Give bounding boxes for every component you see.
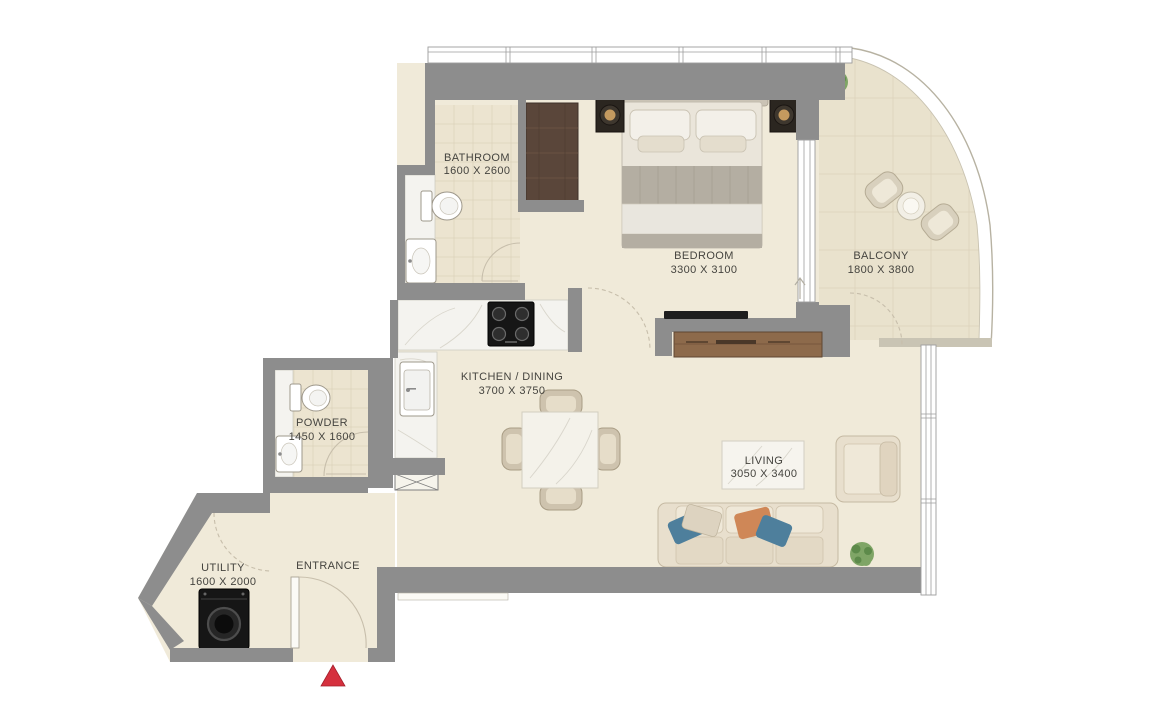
label-bedroom-dims: 3300 X 3100 — [671, 264, 738, 276]
blanket-edge — [622, 234, 762, 248]
wall-shaft-block — [393, 458, 445, 475]
entrance-marker-icon — [321, 665, 345, 686]
dining-table — [522, 412, 598, 488]
window-bedroom-balcony — [798, 140, 815, 302]
cushion — [700, 136, 746, 152]
label-powder: POWDER — [296, 417, 348, 429]
wall-bedroom-right-upper — [796, 100, 819, 140]
wall-powder-right — [368, 358, 393, 488]
label-kitchen-dims: 3700 X 3750 — [479, 385, 546, 397]
nightstand-left — [596, 98, 624, 132]
wall-tv-end — [655, 318, 672, 356]
wall-entry-bottom-left — [170, 648, 293, 662]
label-living-dims: 3050 X 3400 — [731, 468, 798, 480]
window-top — [428, 47, 852, 63]
bathroom-toilet — [421, 191, 462, 221]
wall-tv — [655, 318, 850, 332]
wall-powder-bottom — [263, 477, 368, 493]
floor-plan-page: BATHROOM 1600 X 2600 BEDROOM 3300 X 3100… — [0, 0, 1152, 728]
wall-powder-top — [263, 358, 368, 370]
entry-cabinet-niche — [398, 593, 508, 600]
wall-kitchen-stub — [568, 288, 582, 352]
powder-toilet — [290, 384, 330, 411]
wall-wardrobe-bottom — [518, 200, 584, 212]
wall-bathroom-bottom — [397, 283, 525, 300]
wall-left-upper — [425, 100, 435, 165]
wall-left-step — [397, 165, 435, 175]
sofa — [658, 503, 838, 567]
cooktop — [488, 302, 534, 346]
armchair — [836, 436, 900, 502]
wall-corridor-right — [377, 593, 395, 662]
label-utility: UTILITY — [201, 562, 245, 574]
wardrobe — [526, 103, 578, 202]
entrance-door-leaf — [291, 577, 299, 648]
kitchen-sink — [400, 362, 434, 416]
wall-bottom-main — [377, 567, 922, 593]
label-balcony-dims: 1800 X 3800 — [848, 264, 915, 276]
label-bathroom: BATHROOM — [444, 152, 510, 164]
bathroom-sink — [406, 239, 436, 283]
label-entrance: ENTRANCE — [296, 560, 360, 572]
duvet — [622, 204, 762, 234]
label-living: LIVING — [745, 455, 783, 467]
blanket — [622, 166, 762, 204]
wall-top — [425, 63, 845, 100]
wall-powder-left — [263, 370, 275, 493]
balcony-table — [897, 192, 925, 220]
pillow — [630, 110, 690, 140]
wall-bedroom-right-lower — [796, 302, 819, 318]
double-bed — [616, 94, 768, 248]
washing-machine — [199, 589, 249, 649]
plant-living — [850, 542, 874, 566]
tv-console — [674, 332, 822, 357]
service-shaft — [395, 474, 438, 490]
label-utility-dims: 1600 X 2000 — [190, 576, 257, 588]
wall-bathroom-right — [518, 100, 526, 212]
nightstand-right — [770, 98, 798, 132]
pillow — [696, 110, 756, 140]
label-bedroom: BEDROOM — [674, 250, 734, 262]
tv — [664, 311, 748, 319]
label-powder-dims: 1450 X 1600 — [289, 431, 356, 443]
floor-plan: BATHROOM 1600 X 2600 BEDROOM 3300 X 3100… — [0, 0, 1152, 728]
label-balcony: BALCONY — [853, 250, 909, 262]
label-bathroom-dims: 1600 X 2600 — [444, 165, 511, 177]
window-living-right — [921, 345, 936, 595]
wall-kitchen-left — [390, 300, 398, 358]
cushion — [638, 136, 684, 152]
wall-left-lower — [397, 175, 405, 290]
label-kitchen: KITCHEN / DINING — [461, 371, 563, 383]
